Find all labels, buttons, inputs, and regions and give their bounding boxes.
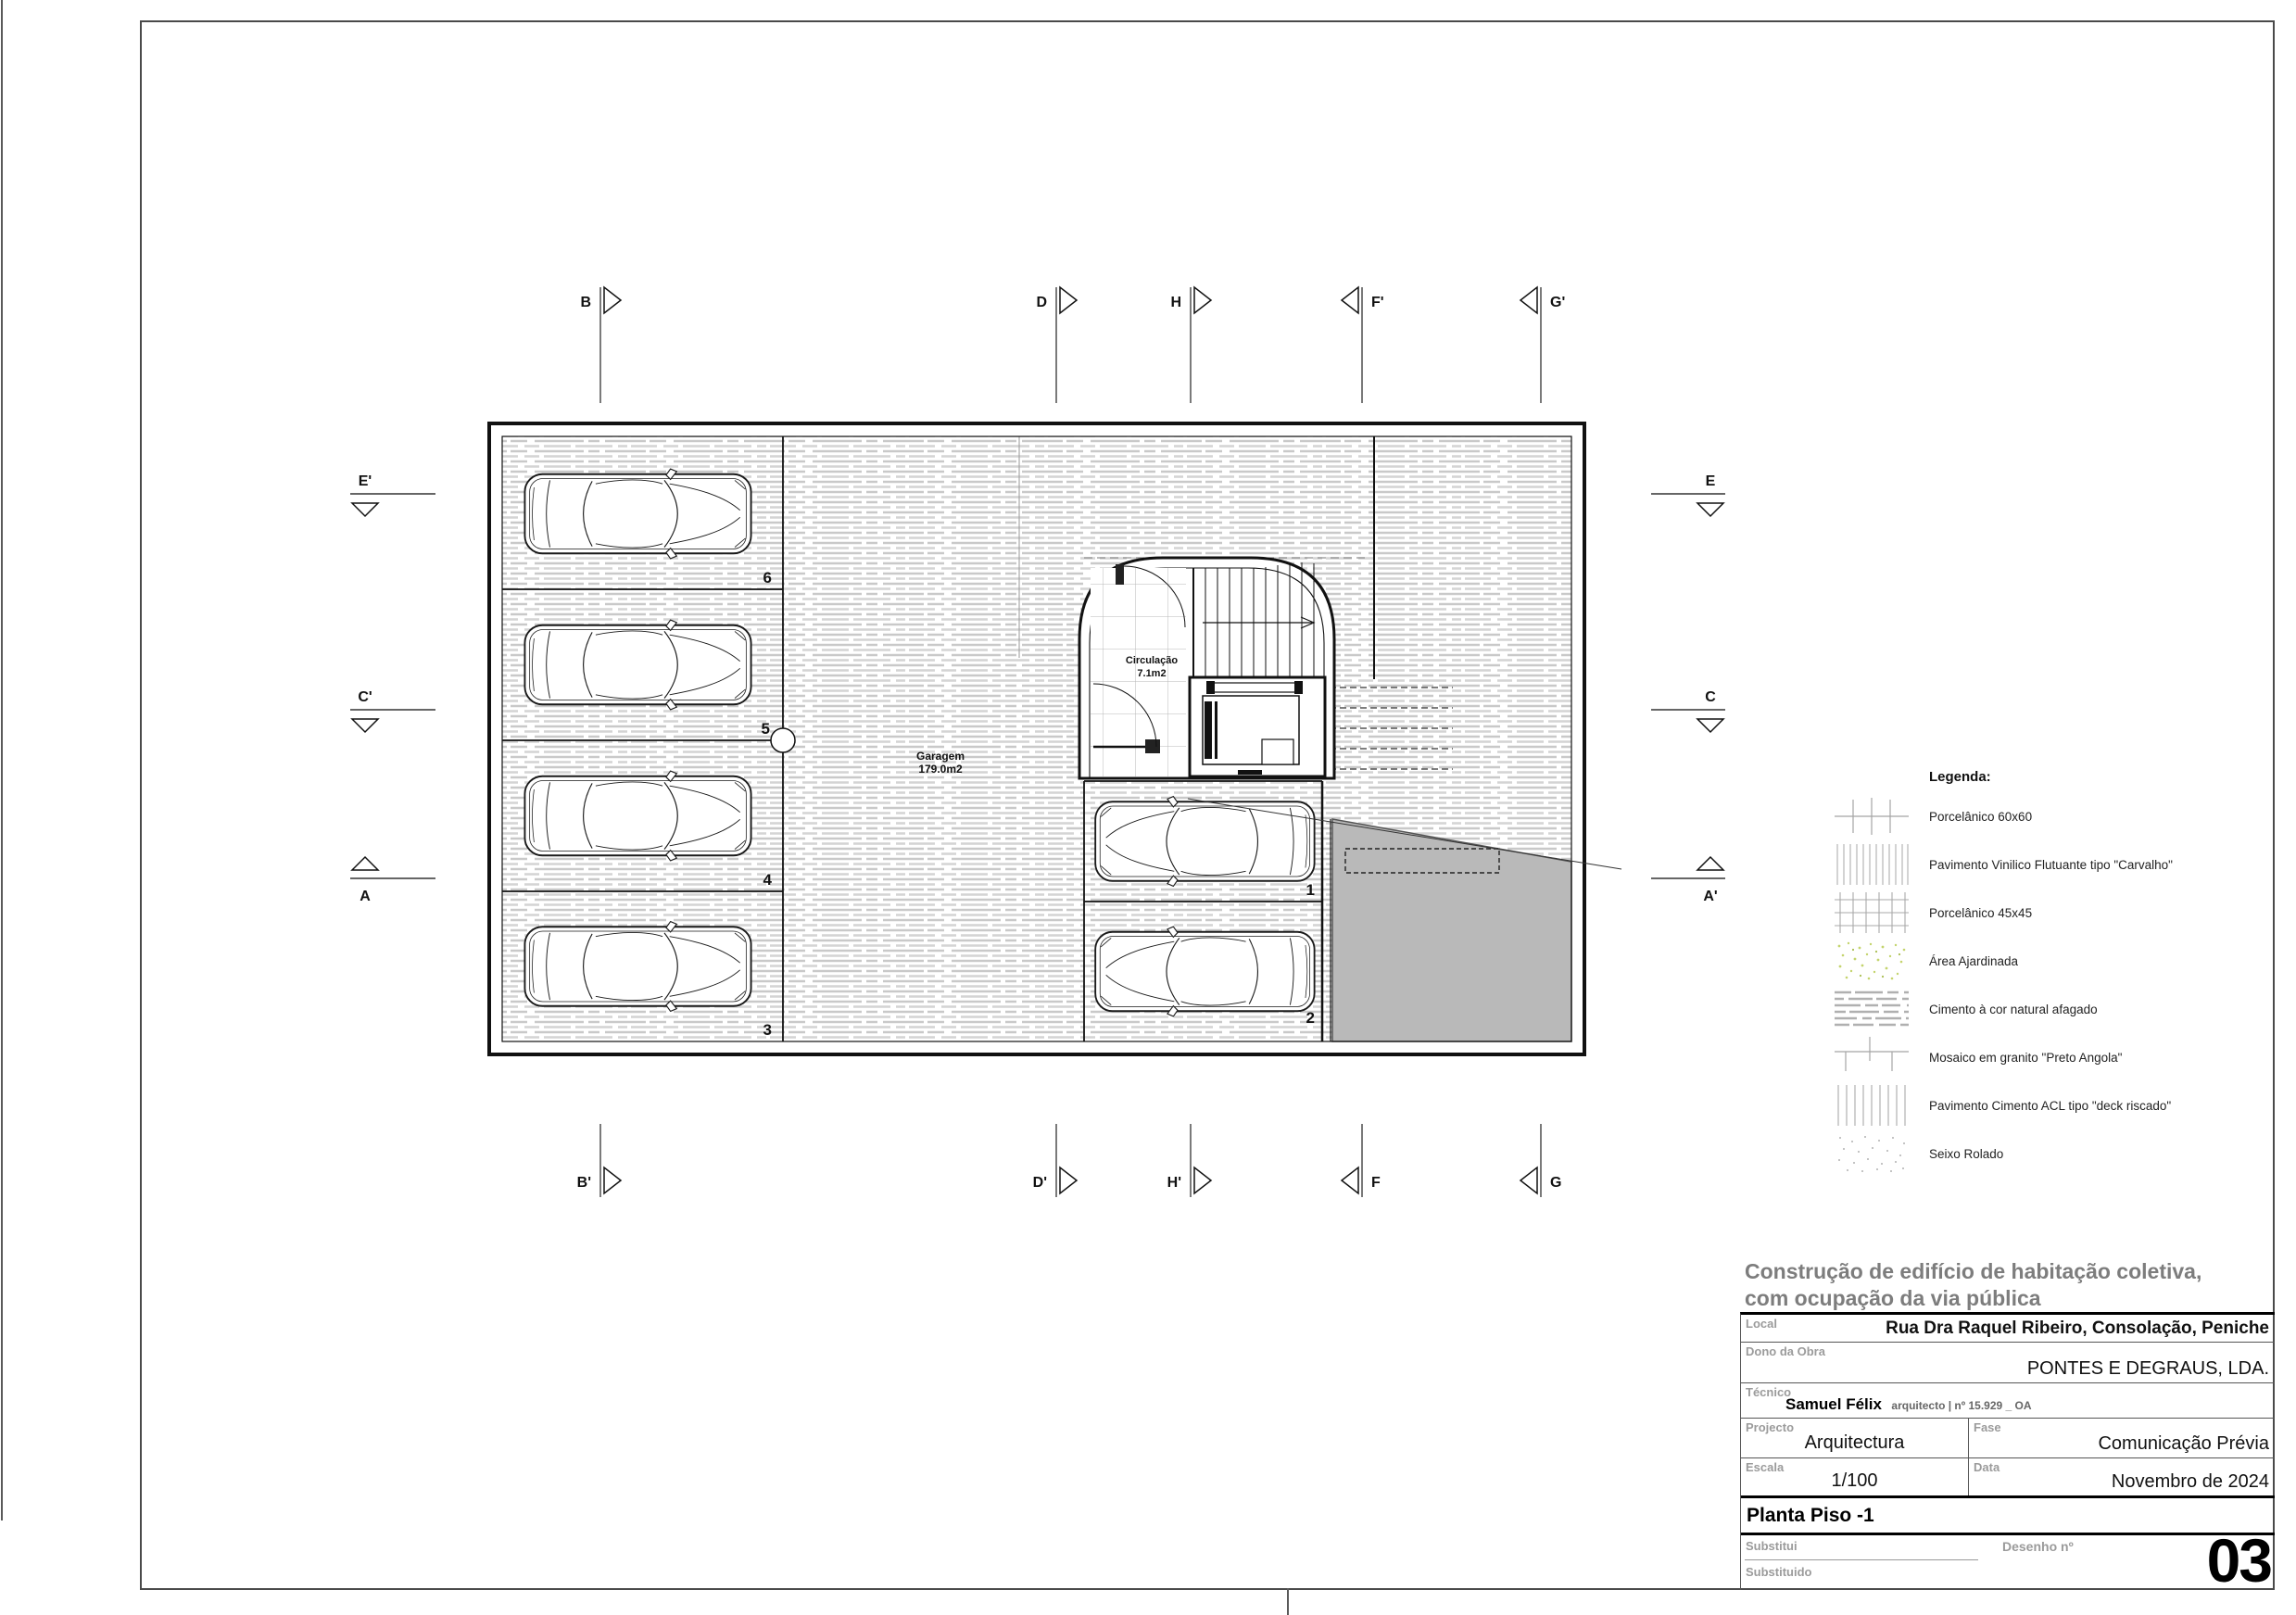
legend-row: Área Ajardinada: [1835, 940, 2018, 981]
substitui-desenho-row: Substitui Substituido Desenho nº 03: [1741, 1535, 2275, 1590]
local-row: Local Rua Dra Raquel Ribeiro, Consolação…: [1741, 1315, 2275, 1343]
stair-elevator-core: Circulação 7.1m2: [1079, 558, 1334, 778]
escala-cell: Escala 1/100: [1741, 1458, 1968, 1495]
section-markers-right: E C A': [1651, 473, 1725, 904]
project-title: Construção de edifício de habitação cole…: [1745, 1258, 2273, 1312]
stall-number-5: 5: [762, 720, 770, 738]
escala-value: 1/100: [1741, 1470, 1968, 1492]
stall-number-6: 6: [763, 569, 772, 587]
dono-da-obra-value: PONTES E DEGRAUS, LDA.: [2027, 1358, 2269, 1380]
car-stall-1: [1095, 797, 1314, 887]
running-bond-swatch-icon: [1835, 1037, 1909, 1078]
garage-gate-dashed: [1345, 849, 1499, 873]
escala-data-row: Escala 1/100 Data Novembro de 2024: [1741, 1458, 2275, 1498]
data-value: Novembro de 2024: [2112, 1471, 2269, 1493]
car-stall-4: [524, 771, 751, 861]
project-title-line1: Construção de edifício de habitação cole…: [1745, 1258, 2273, 1285]
legend-title: Legenda:: [1929, 769, 1991, 785]
local-label: Local: [1746, 1317, 1777, 1331]
elevator-guide-rail: [1205, 701, 1212, 759]
fase-value: Comunicação Prévia: [2098, 1433, 2269, 1455]
legend-label: Pavimento Vinilico Flutuante tipo "Carva…: [1929, 858, 2173, 872]
elevator-counterweight-box: [1262, 739, 1293, 764]
projecto-cell: Projecto Arquitectura: [1741, 1419, 1968, 1457]
title-block-table: Local Rua Dra Raquel Ribeiro, Consolação…: [1740, 1312, 2275, 1590]
legend-label: Seixo Rolado: [1929, 1147, 2003, 1161]
section-label-E: E: [1706, 473, 1716, 489]
section-label-F-prime: F': [1371, 295, 1384, 310]
fase-label: Fase: [1974, 1420, 2001, 1434]
stall-number-4: 4: [763, 871, 773, 889]
elevator-door: [1212, 683, 1297, 692]
project-title-line2: com ocupação da via pública: [1745, 1285, 2273, 1312]
fold-mark: [1287, 1588, 1289, 1615]
title-block: Construção de edifício de habitação cole…: [1740, 1258, 2275, 1590]
legend: Legenda: Porcelânico 60x60 Pavimento Vin…: [1835, 758, 2277, 1193]
dono-da-obra-label: Dono da Obra: [1746, 1344, 1825, 1358]
grid-sparse-60x60-swatch-icon: [1835, 796, 1909, 837]
legend-row: Porcelânico 60x60: [1835, 796, 2032, 837]
car-stall-5: [524, 620, 751, 710]
fase-cell: Fase Comunicação Prévia: [1968, 1419, 2275, 1457]
tecnico-row: Técnico Samuel Félix arquitecto | nº 15.…: [1741, 1383, 2275, 1419]
legend-label: Porcelânico 45x45: [1929, 906, 2032, 920]
section-markers-left: E' C' A: [350, 473, 435, 904]
section-label-H: H: [1170, 295, 1181, 310]
legend-label: Pavimento Cimento ACL tipo "deck riscado…: [1929, 1099, 2171, 1113]
substitui-label: Substitui: [1746, 1539, 1798, 1553]
section-label-F: F: [1371, 1175, 1381, 1191]
circulacao-label: Circulação: [1126, 655, 1179, 666]
section-label-G-prime: G': [1550, 295, 1565, 310]
substituido-label: Substituido: [1746, 1565, 1812, 1579]
stall-number-2: 2: [1306, 1009, 1315, 1027]
drawing-title: Planta Piso -1: [1747, 1505, 1874, 1527]
section-lines-bottom: [600, 1124, 1541, 1197]
data-cell: Data Novembro de 2024: [1968, 1458, 2275, 1495]
tecnico-value: Samuel Félix arquitecto | nº 15.929 _ OA: [1785, 1395, 2032, 1414]
structural-column: [771, 728, 795, 752]
section-label-A: A: [360, 889, 371, 904]
section-label-E-prime: E': [359, 473, 372, 489]
section-label-D-prime: D': [1033, 1175, 1047, 1191]
section-arrows-bottom: [604, 1167, 1537, 1193]
door-leaf-top: [1116, 564, 1124, 585]
floor-plan-drawing: Circulação 7.1m2 6 5 4 3 1 2 Garagem 179…: [278, 259, 1742, 1242]
data-label: Data: [1974, 1460, 2000, 1474]
section-label-B: B: [580, 295, 591, 310]
car-stall-6: [524, 469, 751, 559]
page-edge-line: [1, 0, 3, 1520]
section-label-C-prime: C': [358, 689, 372, 705]
vertical-lines-dense-swatch-icon: [1835, 844, 1909, 885]
legend-row: Pavimento Cimento ACL tipo "deck riscado…: [1835, 1085, 2171, 1126]
legend-row: Cimento à cor natural afagado: [1835, 989, 2098, 1029]
elevator: [1190, 677, 1325, 776]
section-label-D: D: [1036, 295, 1047, 310]
grid-dense-45x45-swatch-icon: [1835, 892, 1909, 933]
legend-row: Porcelânico 45x45: [1835, 892, 2032, 933]
tecnico-name: Samuel Félix: [1785, 1395, 1882, 1413]
drawing-number: 03: [2207, 1525, 2271, 1596]
green-speckle-swatch-icon: [1835, 940, 1909, 981]
dono-da-obra-row: Dono da Obra PONTES E DEGRAUS, LDA.: [1741, 1343, 2275, 1383]
legend-row: Pavimento Vinilico Flutuante tipo "Carva…: [1835, 844, 2173, 885]
legend-label: Porcelânico 60x60: [1929, 810, 2032, 824]
car-stall-2: [1095, 927, 1314, 1016]
stall-number-3: 3: [763, 1021, 772, 1039]
legend-label: Mosaico em granito "Preto Angola": [1929, 1051, 2122, 1065]
stall-number-1: 1: [1306, 881, 1315, 899]
section-label-A-prime: A': [1703, 889, 1717, 904]
projecto-fase-row: Projecto Arquitectura Fase Comunicação P…: [1741, 1419, 2275, 1458]
vertical-lines-swatch-icon: [1835, 1085, 1909, 1126]
tecnico-label: Técnico: [1746, 1385, 1791, 1399]
substitui-divider-line: [1745, 1559, 1978, 1560]
drawing-title-row: Planta Piso -1: [1741, 1498, 2275, 1535]
section-label-B-prime: B': [577, 1175, 591, 1191]
legend-label: Cimento à cor natural afagado: [1929, 1003, 2098, 1016]
garagem-area: 179.0m2: [918, 763, 963, 776]
dot-speckle-swatch-icon: [1835, 1133, 1909, 1174]
local-value: Rua Dra Raquel Ribeiro, Consolação, Peni…: [1886, 1318, 2269, 1339]
car-stall-3: [524, 922, 751, 1012]
section-label-C: C: [1705, 689, 1716, 705]
legend-row: Seixo Rolado: [1835, 1133, 2003, 1174]
section-label-G: G: [1550, 1175, 1561, 1191]
legend-label: Área Ajardinada: [1929, 954, 2018, 968]
tecnico-credentials: arquitecto | nº 15.929 _ OA: [1891, 1399, 2031, 1412]
desenho-numero-label: Desenho nº: [2002, 1539, 2074, 1554]
section-arrows-top: [604, 287, 1537, 313]
horizontal-streaks-swatch-icon: [1835, 989, 1909, 1029]
section-label-H-prime: H': [1167, 1175, 1181, 1191]
circulacao-area: 7.1m2: [1137, 668, 1166, 679]
garagem-label: Garagem: [916, 750, 965, 763]
legend-row: Mosaico em granito "Preto Angola": [1835, 1037, 2122, 1078]
projecto-value: Arquitectura: [1741, 1432, 1968, 1454]
